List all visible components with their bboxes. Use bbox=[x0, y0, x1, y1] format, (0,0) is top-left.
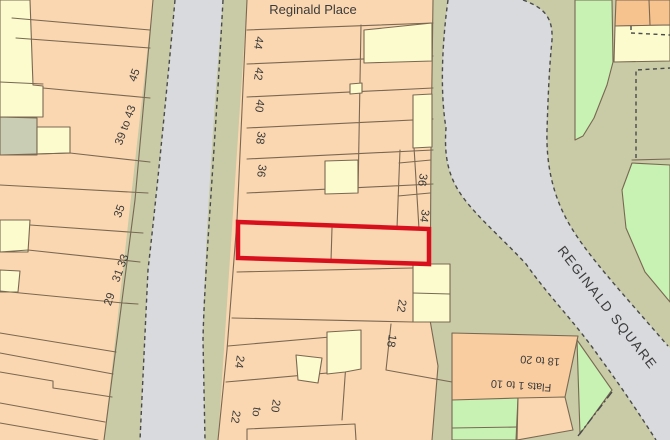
house-range-20: 20 bbox=[268, 399, 282, 414]
block-yellow-parcel-6 bbox=[327, 330, 361, 374]
west-yellow-parcel-3 bbox=[0, 220, 30, 252]
house-number-42: 42 bbox=[251, 67, 265, 82]
block-yellow-parcel-7 bbox=[296, 355, 322, 383]
house-number-38: 38 bbox=[253, 131, 267, 146]
west-yellow-parcel-4 bbox=[0, 270, 20, 292]
west-sage-parcel bbox=[0, 117, 37, 155]
block-yellow-parcel-2 bbox=[350, 83, 362, 94]
block-yellow-parcel-1 bbox=[364, 23, 432, 63]
orange-corner-parcel bbox=[615, 0, 670, 26]
yellow-corner-parcel bbox=[614, 25, 670, 62]
house-number-18: 18 bbox=[384, 334, 398, 349]
house-number-36: 36 bbox=[254, 164, 268, 179]
street-name-label: Reginald Place bbox=[269, 2, 356, 17]
house-range-to: to bbox=[249, 406, 262, 417]
map-canvas: Reginald Place REGINALD SQUARE 45 39 to … bbox=[0, 0, 670, 440]
house-number-34: 34 bbox=[417, 209, 431, 224]
house-range-22: 22 bbox=[228, 410, 242, 425]
house-number-24: 24 bbox=[232, 355, 246, 370]
west-yellow-parcel-2 bbox=[37, 127, 70, 154]
green-bottom-parcel bbox=[452, 398, 518, 440]
house-number-44: 44 bbox=[251, 36, 265, 51]
house-number-22: 22 bbox=[394, 299, 408, 314]
map-view: Reginald Place REGINALD SQUARE 45 39 to … bbox=[0, 0, 670, 440]
house-number-36b: 36 bbox=[415, 173, 429, 188]
house-number-40: 40 bbox=[252, 99, 266, 114]
block-yellow-parcel-3 bbox=[413, 94, 432, 148]
block-yellow-parcel-4 bbox=[325, 160, 358, 194]
